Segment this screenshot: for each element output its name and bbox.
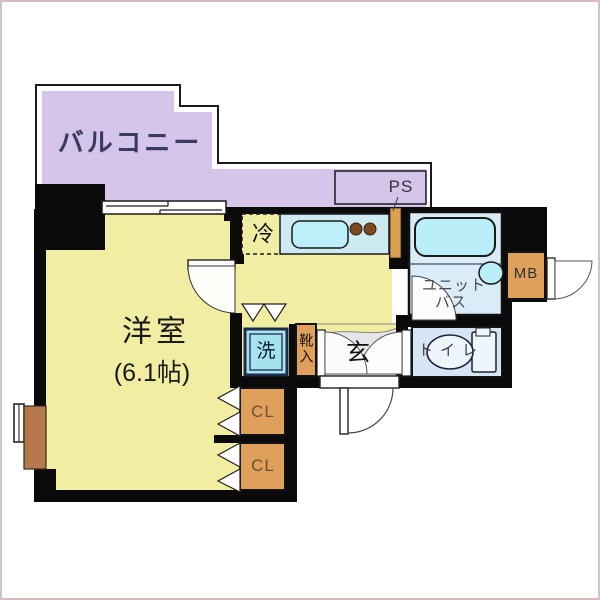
floor-plan-drawing bbox=[2, 2, 600, 600]
label-fridge: 冷 bbox=[252, 222, 274, 245]
label-entrance: 玄 bbox=[346, 340, 370, 365]
wall-closet-divider bbox=[214, 435, 297, 443]
entrance-door-sill bbox=[320, 376, 399, 388]
entrance-inner-door-leaf bbox=[317, 330, 325, 376]
wall-bottom bbox=[34, 490, 297, 502]
window-sill bbox=[24, 406, 46, 469]
entrance-door-swing bbox=[348, 388, 393, 433]
wall-room-kitchen-lower bbox=[230, 313, 242, 380]
bathtub bbox=[415, 218, 495, 256]
label-room-size: (6.1帖) bbox=[114, 360, 190, 386]
label-unit-bath-2: バス bbox=[435, 295, 467, 311]
balcony-window bbox=[102, 201, 226, 214]
label-meter-box: MB bbox=[514, 266, 539, 282]
label-shoe-box: 靴入 bbox=[299, 333, 314, 365]
wall-closet-right bbox=[285, 385, 297, 502]
burner bbox=[364, 223, 376, 235]
label-closet-1: CL bbox=[251, 403, 275, 421]
burner bbox=[350, 223, 362, 235]
label-room-name: 洋室 bbox=[122, 316, 190, 348]
western-room-floor bbox=[42, 209, 240, 493]
label-closet-2: CL bbox=[251, 457, 275, 475]
mb-door-leaf bbox=[547, 258, 555, 299]
label-washer: 洗 bbox=[256, 342, 275, 362]
floor-plan: バルコニー PS 洋室 (6.1帖) 冷 ユニット バス MB トイレ 玄 洗 … bbox=[0, 0, 600, 600]
kitchen-counter bbox=[280, 214, 389, 254]
label-balcony: バルコニー bbox=[58, 129, 202, 156]
side-window bbox=[14, 404, 46, 469]
sink bbox=[292, 221, 348, 248]
label-toilet: トイレ bbox=[418, 343, 484, 359]
label-unit-bath-1: ユニット bbox=[422, 278, 486, 294]
mb-door-swing bbox=[555, 261, 592, 299]
entrance-door-leaf bbox=[340, 388, 348, 434]
label-ps: PS bbox=[389, 178, 414, 196]
toilet-door-leaf bbox=[402, 330, 411, 376]
